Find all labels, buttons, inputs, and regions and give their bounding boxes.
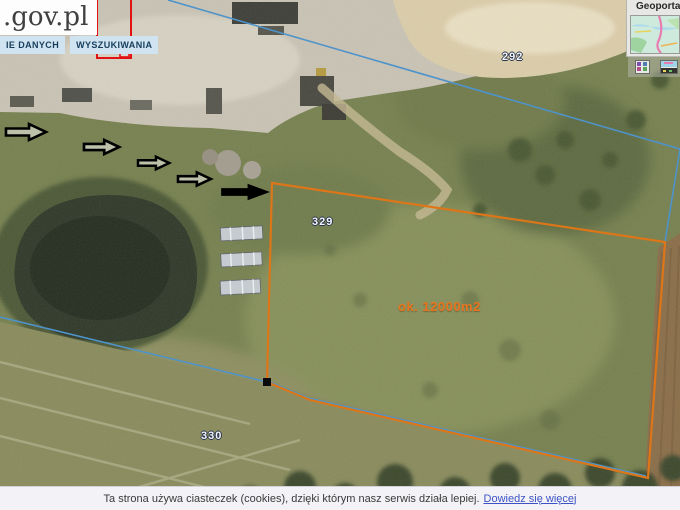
site-header-fragment: .gov.pl (0, 0, 97, 35)
parcel-number-329: 329 (312, 216, 333, 228)
direction-arrow (178, 172, 211, 185)
map-annotations (0, 0, 680, 510)
direction-arrow (222, 185, 268, 199)
overview-map-panel: Geoportal (626, 0, 680, 57)
direction-arrow (138, 157, 169, 169)
cookie-more-link[interactable]: Dowiedz się więcej (484, 493, 577, 505)
menu-tab-dane[interactable]: IE DANYCH (0, 36, 65, 54)
cookie-banner: Ta strona używa ciasteczek (cookies), dz… (0, 486, 680, 510)
direction-arrows (6, 124, 268, 199)
overview-panel-title: Geoportal (627, 0, 680, 13)
map-mini-toolbar (628, 56, 680, 77)
direction-arrow (6, 124, 46, 140)
direction-arrow (84, 140, 119, 154)
overview-map-icon[interactable] (660, 60, 678, 74)
parcel-number-330: 330 (201, 430, 222, 442)
parcel-number-292: 292 (502, 51, 523, 63)
cadastral-boundary-lines (0, 0, 680, 476)
overview-map-thumbnail[interactable] (630, 15, 680, 54)
legend-icon[interactable] (635, 60, 650, 74)
menu-tab-wyszukiwania[interactable]: WYSZUKIWANIA (70, 36, 158, 54)
main-menu: IE DANYCH WYSZUKIWANIA (0, 36, 158, 54)
site-brand: .gov.pl (3, 2, 88, 32)
vertex-marker (263, 378, 271, 386)
area-annotation: ok. 12000m2 (398, 299, 481, 314)
cookie-message: Ta strona używa ciasteczek (cookies), dz… (104, 493, 480, 505)
geoportal-map-view: 292 329 330 ok. 12000m2 .gov.pl IE DANYC… (0, 0, 680, 510)
